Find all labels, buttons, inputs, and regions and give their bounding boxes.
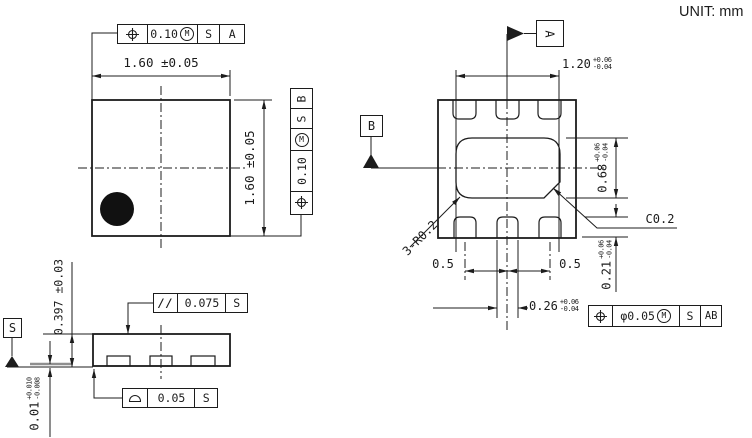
- fcf-datum-ref: S: [195, 389, 217, 407]
- fcf-tolerance: 0.10: [295, 157, 309, 185]
- pitch-dim-left: 0.5: [432, 258, 454, 270]
- mmc-modifier-icon: M: [291, 129, 312, 151]
- fcf-datum-ref: S: [226, 294, 247, 312]
- fcf-position-datum-b: B S M 0.10: [290, 88, 313, 215]
- position-symbol-icon: [118, 25, 148, 43]
- datum-s-letter: S: [9, 321, 16, 335]
- datum-a-letter: A: [543, 30, 557, 37]
- fcf-tolerance: 0.075: [178, 294, 226, 312]
- pad-length-dim: 0.21 +0.06-0.04: [599, 240, 614, 289]
- pitch-dim-right: 0.5: [559, 258, 581, 270]
- fcf-position-datum-a: 0.10 M S A: [117, 24, 245, 44]
- top-view-width-dim: 1.60 ±0.05: [123, 57, 198, 70]
- pin1-indicator-dot: [100, 192, 134, 226]
- pad-span-dim: 1.20 +0.06-0.04: [562, 55, 611, 73]
- mmc-modifier-icon: M: [180, 27, 194, 41]
- drawing-linework: [0, 0, 752, 438]
- fcf-rfs: S: [198, 25, 221, 43]
- fcf-surface-profile: 0.05 S: [122, 388, 218, 408]
- epad-height-dim: 0.68 +0.06-0.04: [595, 143, 610, 192]
- position-symbol-icon: [291, 192, 312, 212]
- fcf-position-pads: φ0.05 M S AB: [588, 305, 722, 327]
- datum-a-flag: A: [536, 20, 564, 47]
- fcf-datum-ref: AB: [701, 306, 721, 326]
- top-view-height-dim: 1.60 ±0.05: [244, 130, 257, 205]
- datum-b-flag: B: [360, 115, 383, 137]
- fcf-parallelism: // 0.075 S: [153, 293, 248, 313]
- fcf-tolerance: 0.10: [150, 27, 178, 41]
- fcf-datum-ref: A: [220, 25, 244, 43]
- datum-b-letter: B: [368, 119, 375, 133]
- fcf-rfs: S: [680, 306, 702, 326]
- datum-s-flag: S: [3, 318, 22, 338]
- surface-profile-symbol-icon: [123, 389, 148, 407]
- unit-note: UNIT: mm: [679, 5, 743, 20]
- parallelism-symbol-icon: //: [154, 294, 178, 312]
- pad-width-dim: 0.26 +0.06-0.04: [529, 297, 578, 315]
- fcf-rfs: S: [295, 115, 309, 122]
- package-outline-drawing: UNIT: mm 1.60 ±0.05 1.60 ±0.05 0.10 M S …: [0, 0, 752, 438]
- mmc-modifier-icon: M: [657, 309, 671, 323]
- chamfer-note: C0.2: [646, 213, 675, 225]
- package-height-dim: 0.397 ±0.03: [53, 259, 65, 335]
- standoff-dim: 0.01 +0.010-0.008: [27, 377, 42, 430]
- fcf-tolerance: φ0.05: [620, 309, 655, 323]
- fcf-tolerance: 0.05: [148, 389, 195, 407]
- position-symbol-icon: [589, 306, 613, 326]
- fcf-datum-ref: B: [295, 95, 309, 102]
